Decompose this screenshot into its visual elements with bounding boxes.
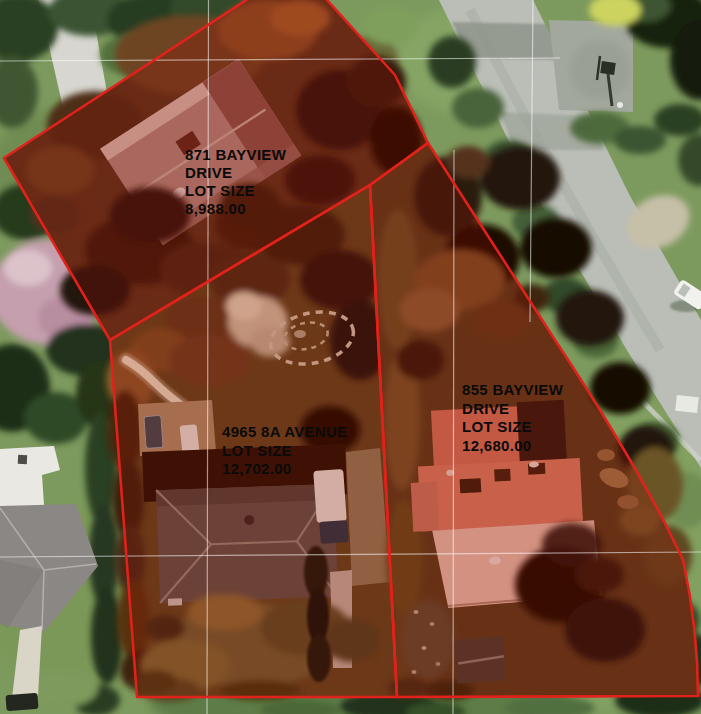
parcel-lot-size-value: 8,988.00 [185, 200, 286, 218]
parcel-label-4965: 4965 8A AVENUE LOT SIZE 12,702.00 [222, 423, 347, 479]
parcel-address-line: 855 BAYVIEW [462, 381, 563, 400]
utility-pad [675, 395, 699, 413]
dark-car [5, 693, 38, 711]
parcel-label-855: 855 BAYVIEW DRIVE LOT SIZE 12,680.00 [462, 381, 563, 455]
parcel-lot-size-label: LOT SIZE [185, 182, 286, 200]
parcel-address-line: 4965 8A AVENUE [222, 423, 347, 442]
parcel-address-line: 871 BAYVIEW [185, 146, 286, 164]
parcel-lot-size-label: LOT SIZE [222, 442, 347, 461]
aerial-parcel-map: 871 BAYVIEW DRIVE LOT SIZE 8,988.00 4965… [0, 0, 701, 714]
parcel-lot-size-value: 12,680.00 [462, 437, 563, 456]
parcel-lot-size-label: LOT SIZE [462, 418, 563, 437]
parcel-lot-size-value: 12,702.00 [222, 460, 347, 479]
parcel-address-line: DRIVE [462, 400, 563, 419]
parcel-label-871: 871 BAYVIEW DRIVE LOT SIZE 8,988.00 [185, 146, 286, 218]
aerial-photo [0, 0, 701, 714]
parcel-address-line: DRIVE [185, 164, 286, 182]
